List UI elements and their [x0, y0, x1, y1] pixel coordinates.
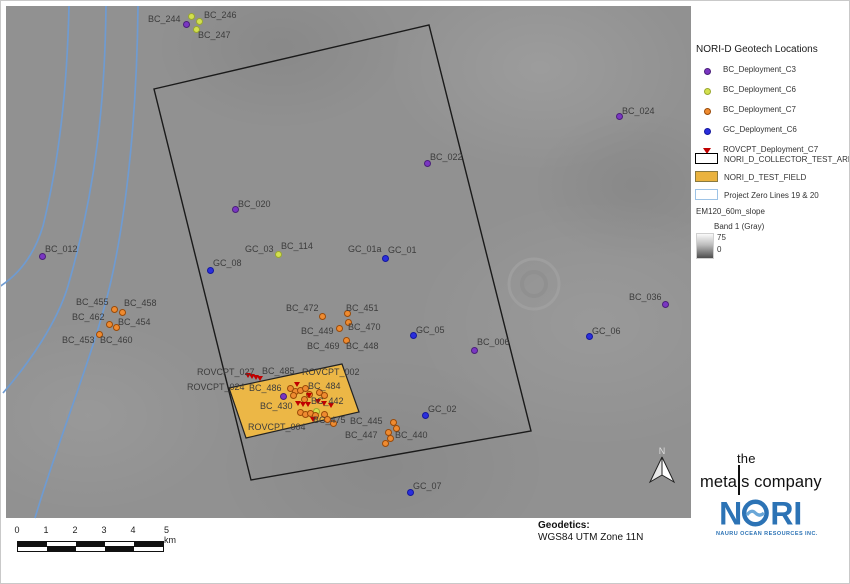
map-label: BC_006: [477, 337, 510, 347]
map-label: GC_08: [213, 258, 242, 268]
legend-shape-item: NORI_D_COLLECTOR_TEST_AREA: [695, 153, 850, 167]
map-label: BC_455: [76, 297, 109, 307]
legend-swatch-icon: [695, 171, 718, 182]
map-point-c7: [319, 313, 326, 320]
legend-item-label: NORI_D_TEST_FIELD: [724, 173, 806, 182]
nori-logo-wave-icon: [747, 511, 764, 515]
map-label: ROVCPT_002: [302, 367, 360, 377]
map-label: BC_469: [307, 341, 340, 351]
map-point-c3: [471, 347, 478, 354]
map-label: GC_01a: [348, 244, 382, 254]
map-label: BC_485: [262, 366, 295, 376]
map-label: BC_024: [622, 106, 655, 116]
geodetics-value: WGS84 UTM Zone 11N: [538, 532, 643, 544]
map-label: GC_06: [592, 326, 621, 336]
map-point-c7: [382, 440, 389, 447]
map-label: BC_448: [346, 341, 379, 351]
legend-shape-item: NORI_D_TEST_FIELD: [695, 171, 850, 185]
map-label: BC_454: [118, 317, 151, 327]
legend-ramp-min: 0: [717, 245, 721, 254]
legend-swatch-icon: [695, 153, 718, 164]
map-rovcpt-triangle: [294, 382, 300, 387]
legend-item-label: Project Zero Lines 19 & 20: [724, 191, 819, 200]
map-export-page: N BC_244BC_246BC_247BC_024BC_022BC_020GC…: [0, 0, 850, 584]
legend-shape-item: Project Zero Lines 19 & 20: [695, 189, 850, 203]
scale-tick-label: 2: [72, 525, 77, 535]
map-label: BC_486: [249, 383, 282, 393]
map-label: BC_012: [45, 244, 78, 254]
legend-item-label: BC_Deployment_C3: [723, 65, 796, 74]
map-label: BC_244: [148, 14, 181, 24]
map-label: BC_460: [100, 335, 133, 345]
scale-segment: [134, 547, 163, 551]
map-label: BC_447: [345, 430, 378, 440]
legend-item-label: BC_Deployment_C6: [723, 85, 796, 94]
scale-tick-label: 0: [14, 525, 19, 535]
map-point-c3: [280, 393, 287, 400]
legend-raster-band: Band 1 (Gray): [714, 222, 764, 231]
legend-item-gc_deployment_c6: GC_Deployment_C6: [695, 124, 850, 138]
map-label: BC_462: [72, 312, 105, 322]
map-label: GC_03: [245, 244, 274, 254]
map-label: BC_036: [629, 292, 662, 302]
legend-dot-icon: [704, 88, 711, 95]
map-point-c7: [106, 321, 113, 328]
map-point-c6: [275, 251, 282, 258]
map-label: GC_01: [388, 245, 417, 255]
scale-segment: [47, 547, 76, 551]
map-label: BC_020: [238, 199, 271, 209]
map-label: BC_475: [313, 415, 346, 425]
map-label: BC_484: [308, 381, 341, 391]
legend-item-label: GC_Deployment_C6: [723, 125, 797, 134]
map-point-c3: [662, 301, 669, 308]
map-label: ROVCPT_004: [248, 422, 306, 432]
map-label: BC_114: [281, 241, 313, 251]
legend-dot-icon: [704, 128, 711, 135]
bathymetry-basemap: [6, 6, 691, 518]
map-point-c7: [336, 325, 343, 332]
map-label: BC_470: [348, 322, 381, 332]
map-label: BC_440: [395, 430, 428, 440]
map-label: BC_449: [301, 326, 334, 336]
legend-gray-ramp: [696, 233, 714, 259]
nori-logo-n: N: [719, 497, 742, 529]
map-label: GC_05: [416, 325, 445, 335]
map-label: BC_451: [346, 303, 379, 313]
legend-item-label: BC_Deployment_C7: [723, 105, 796, 114]
map-point-c7: [290, 392, 297, 399]
legend-swatch-icon: [695, 189, 718, 200]
map-label: BC_247: [198, 30, 231, 40]
scale-end-label: 5 km: [164, 525, 176, 545]
map-label: ROVCPT_027: [197, 367, 255, 377]
scale-tick-label: 1: [43, 525, 48, 535]
map-rovcpt-triangle: [257, 376, 263, 381]
map-point-c3: [183, 21, 190, 28]
geodetics-title: Geodetics:: [538, 520, 643, 532]
map-label: BC_430: [260, 401, 293, 411]
scale-segment: [18, 547, 47, 551]
tmc-logo-the: the: [737, 452, 840, 465]
map-point-c6: [188, 13, 195, 20]
tmc-logo-bar: [738, 465, 740, 495]
metals-company-logo: the metas company: [700, 452, 840, 495]
map-label: BC_246: [204, 10, 237, 20]
map-label: BC_472: [286, 303, 319, 313]
legend-ramp-max: 75: [717, 233, 726, 242]
legend-item-bc_deployment_c6: BC_Deployment_C6: [695, 84, 850, 98]
legend-item-label: NORI_D_COLLECTOR_TEST_AREA: [724, 155, 850, 164]
scale-segment: [76, 547, 105, 551]
tmc-logo-main: metas company: [700, 465, 840, 495]
geodetics-note: Geodetics: WGS84 UTM Zone 11N: [538, 520, 643, 544]
legend-raster-name: EM120_60m_slope: [696, 207, 765, 216]
map-label: GC_02: [428, 404, 457, 414]
scale-bar-segments: [17, 541, 164, 552]
nori-logo-ri: RI: [770, 497, 802, 529]
legend-title: NORI-D Geotech Locations: [696, 44, 818, 55]
legend-dot-icon: [704, 108, 711, 115]
map-point-c7: [111, 306, 118, 313]
map-label: BC_445: [350, 416, 383, 426]
scale-segment: [105, 547, 134, 551]
legend-item-bc_deployment_c3: BC_Deployment_C3: [695, 64, 850, 78]
map-label: BC_453: [62, 335, 95, 345]
nori-logo: N RI: [715, 497, 815, 529]
map-point-c6: [196, 18, 203, 25]
scale-tick-label: 4: [130, 525, 135, 535]
scale-tick-label: 3: [101, 525, 106, 535]
map-label: BC_022: [430, 152, 463, 162]
map-point-c7: [119, 309, 126, 316]
map-label: BC_442: [311, 396, 344, 406]
map-label: GC_07: [413, 481, 442, 491]
nori-logo-subtext: NAURU OCEAN RESOURCES INC.: [716, 531, 818, 537]
map-point-gc: [382, 255, 389, 262]
legend-dot-icon: [704, 68, 711, 75]
map-label: BC_458: [124, 298, 157, 308]
legend-item-bc_deployment_c7: BC_Deployment_C7: [695, 104, 850, 118]
map-label: ROVCPT_024: [187, 382, 245, 392]
